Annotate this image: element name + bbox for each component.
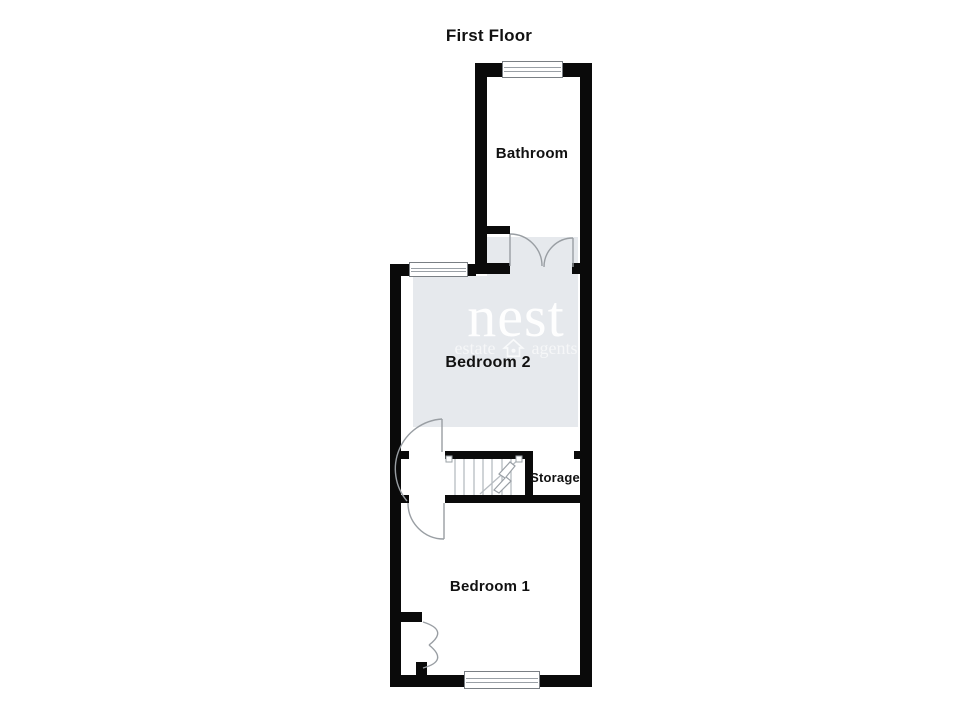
window-bedroom1 xyxy=(464,671,540,689)
window-pane-line xyxy=(504,71,561,72)
window-pane-line xyxy=(411,271,466,272)
window-pane-line xyxy=(411,268,466,269)
room-label-bedroom1: Bedroom 1 xyxy=(450,578,530,595)
wall-stairs-top xyxy=(445,451,533,459)
floor-title: First Floor xyxy=(446,26,532,46)
room-label-bathroom: Bathroom xyxy=(496,145,568,162)
wall-bedroom1-top xyxy=(445,495,580,503)
cupboard-door-arc-top xyxy=(423,622,438,645)
floorplan-canvas: First Floor nest estate agents xyxy=(0,0,980,712)
watermark-tagline-right: agents xyxy=(532,338,578,359)
wall-bathroom-left xyxy=(475,63,487,271)
wall-landing-right-stub xyxy=(572,263,580,274)
window-pane-line xyxy=(466,682,538,683)
wall-cupboard-top-stub xyxy=(401,612,422,622)
wall-storage-right-stub xyxy=(574,451,580,459)
wall-landing-left xyxy=(475,263,510,274)
wall-bathroom-door-stub xyxy=(486,226,510,234)
window-pane-line xyxy=(466,678,538,679)
staircase xyxy=(446,456,522,495)
room-label-storage: Storage xyxy=(530,470,580,485)
window-pane-line xyxy=(504,67,561,68)
wall-stub-upper-left xyxy=(401,451,409,459)
wall-left-main xyxy=(390,264,401,687)
door-arc-bedroom2 xyxy=(395,419,442,501)
wall-stub-lower-left xyxy=(401,495,409,503)
window-bathroom xyxy=(502,61,563,78)
stair-direction-arrow xyxy=(494,462,515,493)
wall-right-main xyxy=(580,63,592,687)
door-arc-bedroom1 xyxy=(408,503,444,539)
window-bedroom2 xyxy=(409,262,468,277)
wall-cupboard-bottom-stub xyxy=(416,662,427,676)
room-label-bedroom2: Bedroom 2 xyxy=(445,354,530,372)
